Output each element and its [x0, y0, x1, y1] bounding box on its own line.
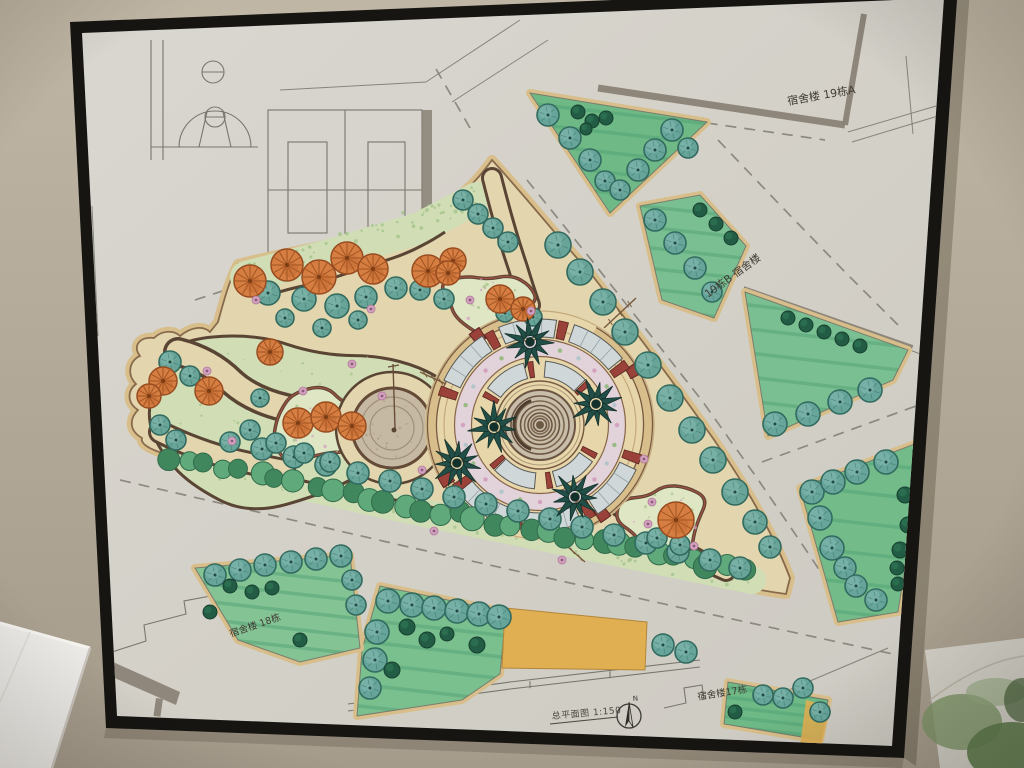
photo-vignette [0, 0, 1024, 768]
photo-of-site-plan: 宿舍楼 19栋A 19栋B 宿舍楼 宿舍楼 18栋 宿舍楼17栋 总平面图 1:… [0, 0, 1024, 768]
framed-site-plan-photo: 宿舍楼 19栋A 19栋B 宿舍楼 宿舍楼 18栋 宿舍楼17栋 总平面图 1:… [0, 0, 1024, 768]
